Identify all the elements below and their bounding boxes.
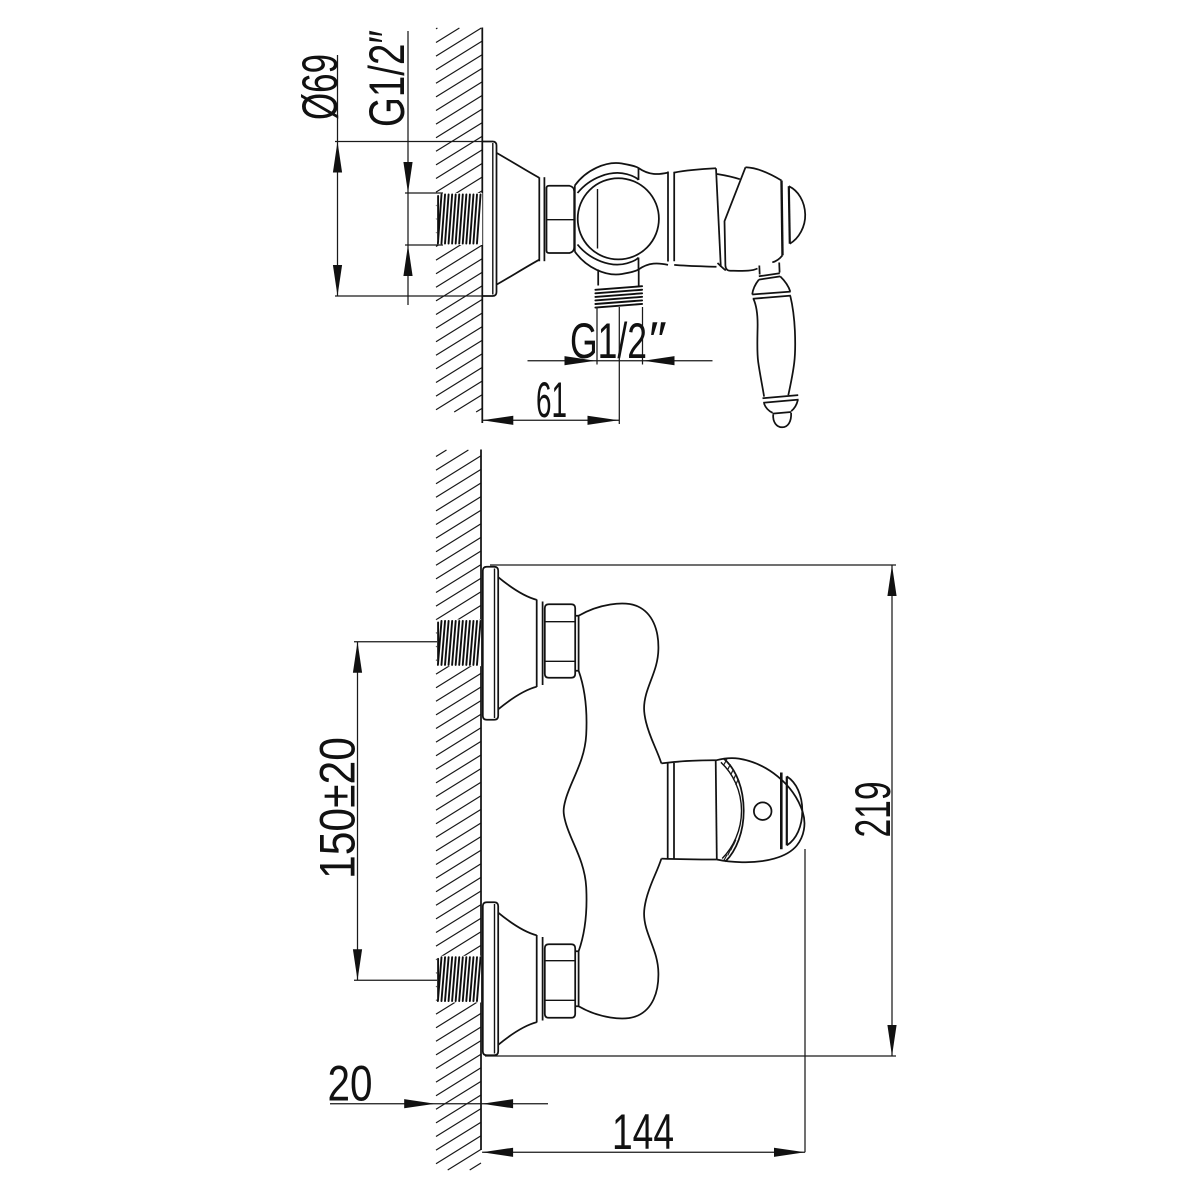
svg-text:″: ″ xyxy=(649,312,667,368)
svg-text:20: 20 xyxy=(328,1056,373,1112)
svg-text:G1/2″: G1/2″ xyxy=(359,30,415,127)
svg-text:219: 219 xyxy=(845,782,901,838)
svg-text:150±20: 150±20 xyxy=(310,737,366,879)
svg-text:G1/2: G1/2 xyxy=(570,313,647,369)
svg-text:Ø69: Ø69 xyxy=(292,54,348,120)
svg-text:61: 61 xyxy=(536,372,567,428)
svg-text:144: 144 xyxy=(612,1104,674,1160)
